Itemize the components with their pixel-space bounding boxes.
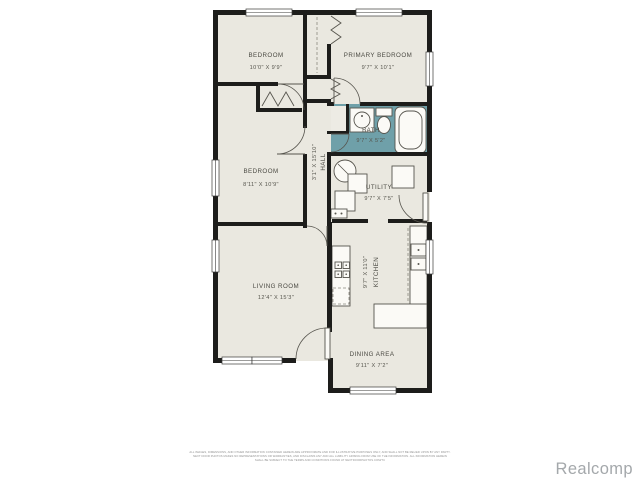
room-label: UTILITY (366, 184, 392, 191)
room-label: LIVING ROOM (253, 283, 299, 290)
room-dims: 9'7" X 10'1" (362, 65, 395, 71)
room-label: BEDROOM (243, 168, 278, 175)
room-label: BEDROOM (248, 52, 283, 59)
realcomp-logo: Realcomp (556, 460, 633, 478)
room-dims: 9'11" X 7'2" (356, 363, 388, 369)
room-dims: 8'11" X 10'9" (243, 182, 279, 188)
toilet-tank (376, 108, 392, 116)
room-label: BATH (362, 127, 380, 134)
kitchen-peninsula-counter (374, 304, 427, 328)
wall (303, 99, 331, 103)
burner-dot (337, 264, 339, 266)
burner-dot (337, 273, 339, 275)
wall (213, 222, 307, 226)
burner-dot (345, 264, 347, 266)
washer-icon (348, 174, 367, 193)
room-dims: 3'1" X 15'10" (312, 144, 318, 180)
room-label: DINING AREA (350, 351, 395, 358)
wall (346, 104, 349, 134)
bathtub-inner (399, 111, 422, 149)
utility-storage-box (392, 166, 414, 188)
front-door-leaf (325, 328, 330, 359)
sink-dot (418, 263, 420, 265)
wall (303, 15, 307, 128)
floor-areas (215, 12, 430, 391)
wall (327, 152, 331, 228)
wall (327, 152, 432, 156)
floor-plan-page: BEDROOM 10'0" X 9'9" PRIMARY BEDROOM 9'7… (0, 0, 640, 480)
floor-linen-closet (331, 106, 347, 132)
exterior-door-leaf (423, 193, 428, 221)
laundry-dot (335, 213, 337, 215)
burner-dot (345, 273, 347, 275)
sink-icon (354, 112, 370, 128)
wall (327, 102, 334, 106)
room-label: HALL (320, 153, 327, 170)
wall (327, 222, 332, 332)
room-label: KITCHEN (373, 257, 380, 287)
wall (213, 82, 278, 86)
room-dims: 10'0" X 9'9" (250, 65, 283, 71)
room-label: PRIMARY BEDROOM (344, 52, 412, 59)
wall (303, 75, 331, 79)
wall (303, 154, 307, 228)
wall (328, 358, 333, 393)
floor-plan: BEDROOM 10'0" X 9'9" PRIMARY BEDROOM 9'7… (0, 0, 640, 480)
laundry-tub-icon (331, 209, 347, 218)
footer: ALL IMAGES, DIMENSIONS, AND OTHER INFORM… (189, 450, 633, 478)
room-dims: 9'7" X 7'5" (364, 196, 393, 202)
wall (256, 108, 302, 112)
disclaimer-line: SHALL BE SUBJECT TO THE TERMS AND CONDIT… (255, 458, 385, 462)
laundry-dot (341, 213, 343, 215)
sink-dot (418, 249, 420, 251)
wall (427, 10, 432, 192)
disclaimer-line: NEXT DOOR PHOTOS MAKES NO REPRESENTATION… (193, 454, 447, 458)
floor-dining (330, 356, 430, 391)
wall (360, 102, 432, 106)
wall (327, 44, 331, 79)
room-dims: 9'7" X 5'2" (356, 138, 385, 144)
room-dims: 9'7" X 11'0" (363, 256, 369, 288)
room-dims: 12'4" X 15'3" (258, 295, 294, 301)
disclaimer-line: ALL IMAGES, DIMENSIONS, AND OTHER INFORM… (189, 450, 450, 454)
wall (332, 219, 368, 223)
sink-faucet-dot (361, 115, 363, 117)
dryer-icon (335, 191, 355, 211)
wall (327, 131, 331, 134)
